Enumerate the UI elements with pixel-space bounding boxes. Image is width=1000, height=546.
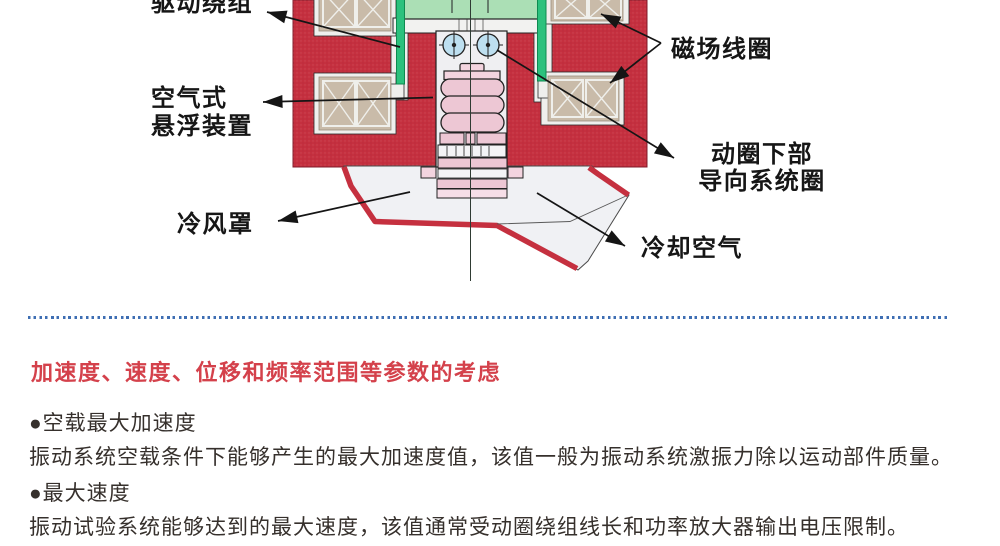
section-heading: 加速度、速度、位移和频率范围等参数的考虑 (31, 355, 501, 387)
air-suspension-bellows (441, 64, 504, 133)
label-drive-winding: 驱动绕组 (151, 0, 253, 18)
shaker-cross-section-diagram (0, 0, 1000, 300)
armature-table (393, 0, 545, 33)
coil-top-left (319, 0, 391, 31)
item-desc-max-velocity: 振动试验系统能够达到的最大速度，该值通常受动圈绕组线长和功率放大器输出电压限制。 (29, 511, 909, 541)
page: 驱动绕组 空气式 悬浮装置 冷风罩 磁场线圈 动圈下部 导向系统圈 冷却空气 加… (0, 0, 1000, 546)
label-field-coil: 磁场线圈 (671, 36, 773, 64)
coil-top-right (551, 0, 623, 21)
label-air-suspension-line2: 悬浮装置 (151, 113, 253, 141)
label-guide-system-line1: 动圈下部 (695, 141, 829, 168)
label-guide-system-line2: 导向系统圈 (695, 168, 829, 195)
item-title-max-acceleration: ●空载最大加速度 (29, 407, 197, 437)
item-title-max-velocity: ●最大速度 (29, 477, 131, 507)
coil-bottom-right (548, 76, 619, 121)
dotted-divider (28, 316, 949, 319)
label-cooling-air: 冷却空气 (641, 235, 743, 263)
label-air-suspension-line1: 空气式 (151, 85, 253, 113)
item-desc-max-acceleration: 振动系统空载条件下能够产生的最大加速度值，该值一般为振动系统激振力除以运动部件质… (29, 441, 953, 471)
label-cooling-hood: 冷风罩 (177, 211, 254, 239)
coil-bottom-left (319, 77, 391, 130)
